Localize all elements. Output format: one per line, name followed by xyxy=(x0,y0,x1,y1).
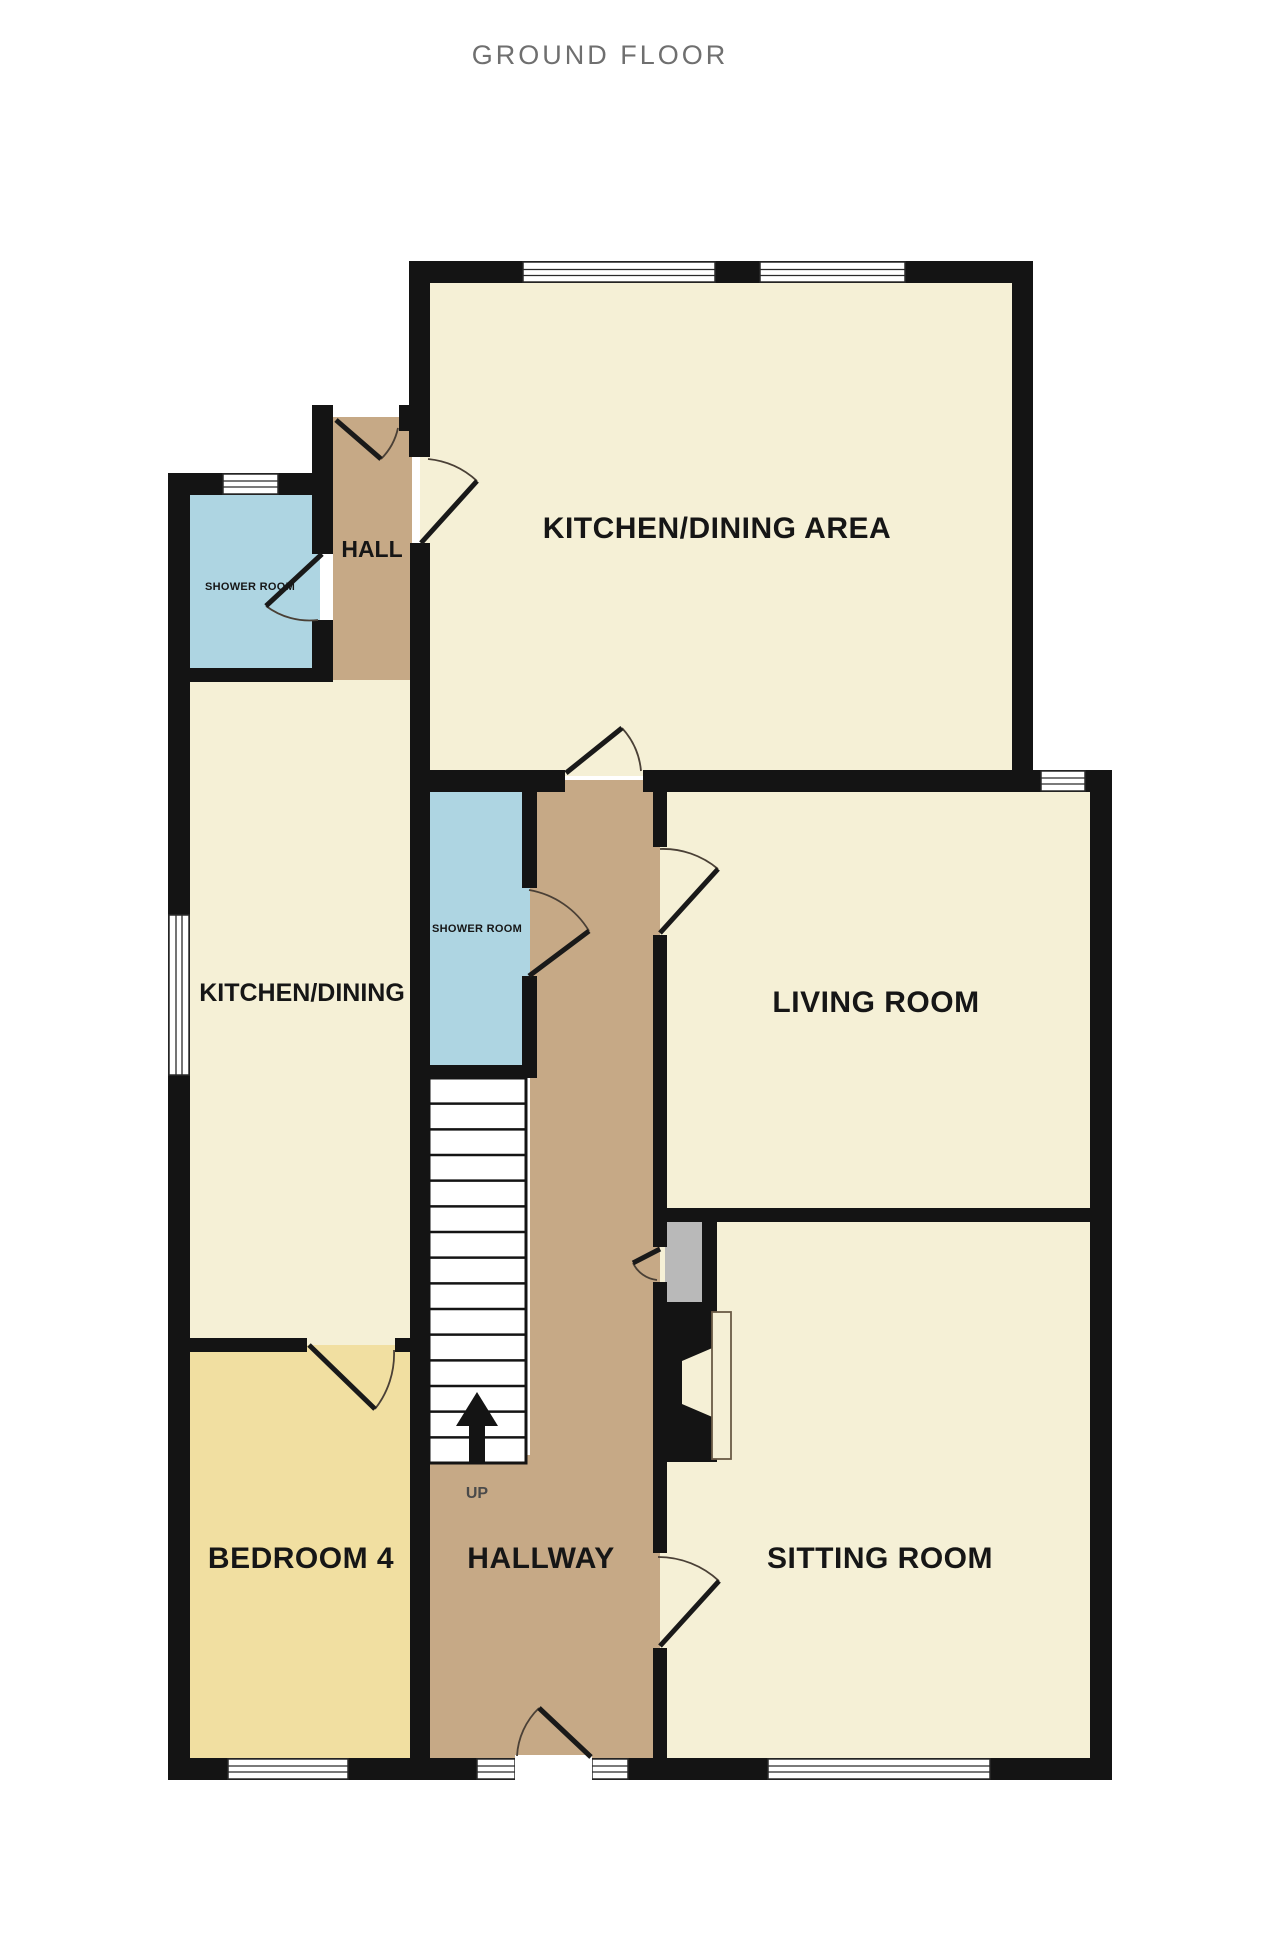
window-kitchen-top-left xyxy=(523,262,715,282)
floorplan-page: GROUND FLOOR KITCHEN/DINING AREA HALL SH… xyxy=(0,0,1280,1949)
label-living-room: LIVING ROOM xyxy=(772,986,979,1019)
floorplan-canvas: GROUND FLOOR KITCHEN/DINING AREA HALL SH… xyxy=(0,0,1280,1949)
page-title: GROUND FLOOR xyxy=(472,40,729,70)
label-sitting-room: SITTING ROOM xyxy=(767,1542,993,1575)
window-sitting-bottom xyxy=(768,1759,990,1779)
understairs-cupboard xyxy=(665,1222,705,1302)
shower-room-top-room xyxy=(180,483,320,675)
window-frontdoor-sidelight-left xyxy=(477,1759,515,1779)
window-living-top xyxy=(1041,771,1085,791)
label-kitchen-dining-area: KITCHEN/DINING AREA xyxy=(543,512,891,545)
staircase xyxy=(429,1078,526,1464)
label-hall: HALL xyxy=(341,536,402,562)
window-bedroom-bottom xyxy=(228,1759,348,1779)
label-bedroom-4: BEDROOM 4 xyxy=(208,1542,394,1575)
sitting-room-room xyxy=(660,1215,1100,1775)
label-shower-room-middle: SHOWER ROOM xyxy=(432,923,522,935)
front-door-opening xyxy=(515,1755,592,1783)
window-left-wall xyxy=(169,915,189,1075)
fireplace-hearth xyxy=(712,1312,731,1459)
label-stairs-up: UP xyxy=(466,1485,489,1502)
kitchen-dining-room xyxy=(180,680,420,1345)
label-shower-room-top: SHOWER ROOM xyxy=(205,581,295,593)
label-kitchen-dining: KITCHEN/DINING xyxy=(199,979,405,1007)
window-frontdoor-sidelight-right xyxy=(592,1759,628,1779)
label-hallway: HALLWAY xyxy=(467,1542,614,1575)
window-kitchen-top-right xyxy=(760,262,905,282)
window-shower-top xyxy=(223,474,278,494)
